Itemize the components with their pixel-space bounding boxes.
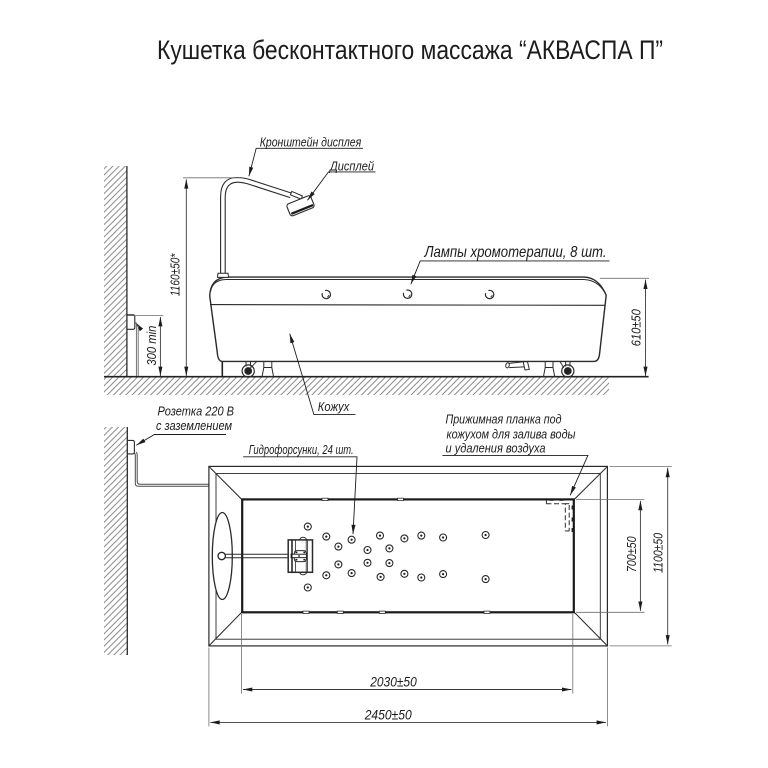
svg-text:700±50: 700±50 [625,536,639,572]
svg-text:1160±50*: 1160±50* [168,253,182,296]
svg-text:Гидрофорсунки, 24 шт.: Гидрофорсунки, 24 шт. [249,442,354,457]
svg-text:Кушетка бесконтактного массажа: Кушетка бесконтактного массажа “АКВАСПА … [157,35,663,65]
svg-text:Прижимная планка под: Прижимная планка под [446,411,562,426]
svg-text:Лампы хромотерапии, 8 шт.: Лампы хромотерапии, 8 шт. [424,244,607,261]
svg-text:с заземлением: с заземлением [156,418,232,433]
svg-text:2030±50: 2030±50 [369,675,417,690]
svg-text:Кожух: Кожух [318,400,350,414]
svg-text:и удаления воздуха: и удаления воздуха [446,441,546,456]
svg-text:2450±50: 2450±50 [364,707,412,722]
svg-text:Кронштейн дисплея: Кронштейн дисплея [260,135,362,149]
svg-text:300 min: 300 min [145,326,159,366]
svg-text:Розетка 220 В: Розетка 220 В [158,403,235,418]
svg-text:Дисплей: Дисплей [328,159,374,173]
svg-text:кожухом для залива воды: кожухом для залива воды [447,426,576,441]
svg-text:1100±50: 1100±50 [652,533,666,573]
svg-text:610±50: 610±50 [630,309,644,346]
